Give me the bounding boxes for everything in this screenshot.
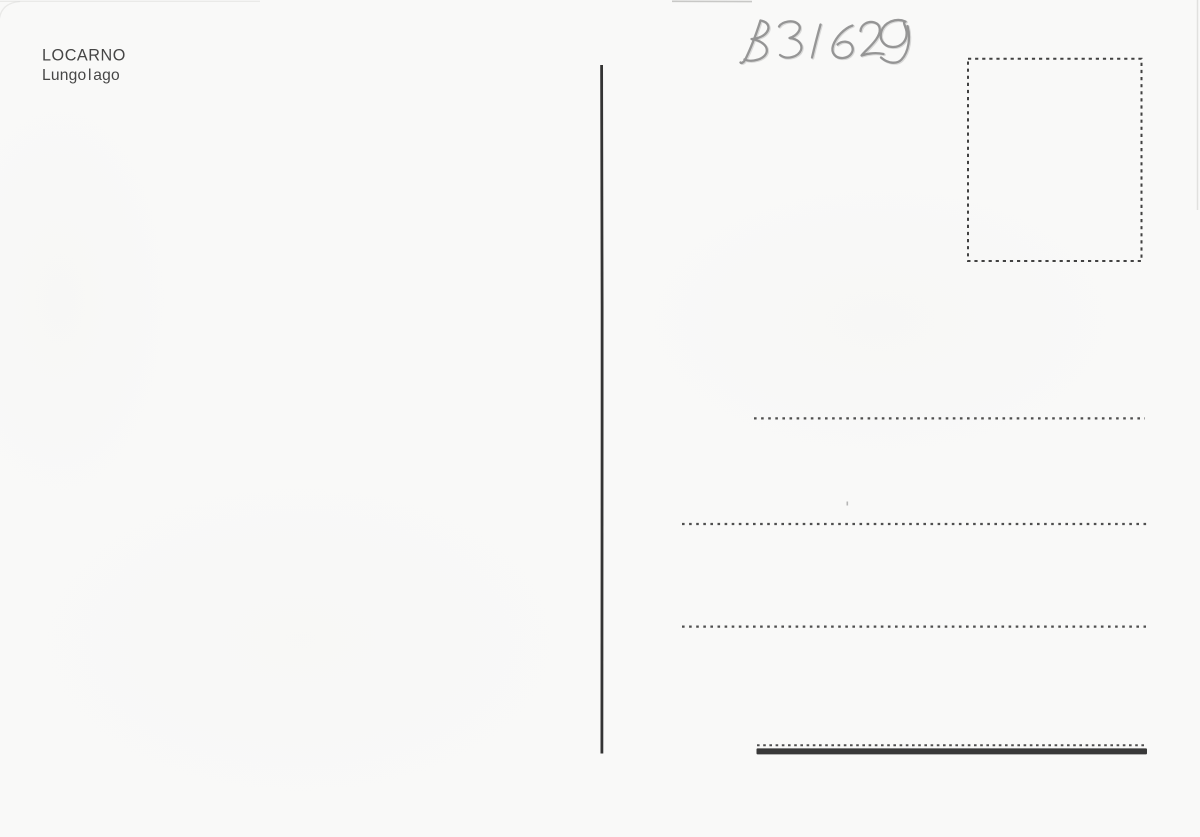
- svg-text:LOCARNO: LOCARNO: [42, 47, 126, 65]
- svg-text:Lungolago: Lungolago: [42, 67, 120, 84]
